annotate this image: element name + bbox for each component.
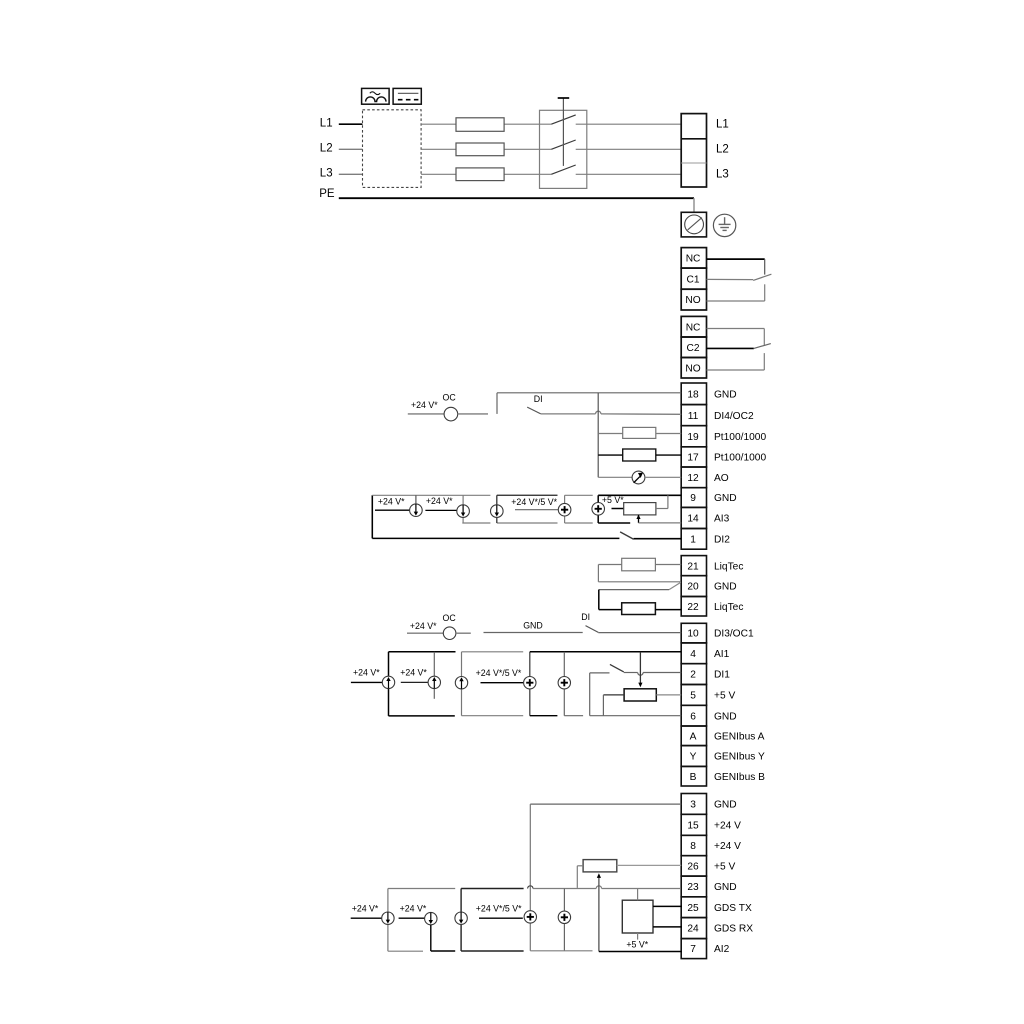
svg-text:+24 V*: +24 V* [353, 667, 380, 677]
svg-text:GND: GND [714, 582, 737, 593]
svg-text:NC: NC [686, 253, 701, 264]
svg-text:L2: L2 [320, 143, 333, 155]
svg-text:DI3/OC1: DI3/OC1 [714, 629, 754, 640]
svg-text:9: 9 [690, 493, 696, 504]
svg-text:7: 7 [690, 944, 696, 955]
svg-text:Pt100/1000: Pt100/1000 [714, 432, 766, 443]
svg-text:GND: GND [714, 882, 737, 893]
svg-text:+24 V*/5 V*: +24 V*/5 V* [511, 497, 557, 507]
svg-text:12: 12 [687, 473, 699, 484]
svg-text:L3: L3 [320, 168, 333, 180]
svg-text:DI4/OC2: DI4/OC2 [714, 411, 754, 422]
svg-text:LiqTec: LiqTec [714, 561, 743, 572]
svg-text:20: 20 [687, 582, 699, 593]
svg-text:C1: C1 [687, 274, 700, 285]
svg-text:1: 1 [690, 534, 696, 545]
svg-text:5: 5 [690, 691, 696, 702]
svg-text:L2: L2 [716, 144, 729, 156]
svg-text:LiqTec: LiqTec [714, 602, 743, 613]
svg-text:AI2: AI2 [714, 944, 730, 955]
svg-text:GND: GND [523, 621, 543, 631]
svg-text:C2: C2 [687, 343, 700, 354]
svg-text:24: 24 [687, 924, 699, 935]
svg-text:Y: Y [690, 752, 697, 763]
svg-text:GDS TX: GDS TX [714, 903, 752, 914]
svg-text:Pt100/1000: Pt100/1000 [714, 453, 766, 464]
svg-text:B: B [690, 772, 697, 783]
svg-text:+5 V*: +5 V* [626, 940, 648, 950]
svg-text:GND: GND [714, 493, 737, 504]
svg-text:+24 V: +24 V [714, 841, 741, 852]
svg-text:19: 19 [687, 432, 699, 443]
svg-text:OC: OC [443, 393, 457, 403]
svg-text:10: 10 [687, 629, 699, 640]
svg-text:PE: PE [319, 188, 335, 200]
svg-text:26: 26 [687, 862, 699, 873]
svg-text:GENIbus A: GENIbus A [714, 731, 765, 742]
svg-text:+24 V*: +24 V* [400, 667, 427, 677]
svg-text:+24 V*/5 V*: +24 V*/5 V* [476, 668, 522, 678]
svg-text:+5 V*: +5 V* [602, 495, 624, 505]
svg-text:L1: L1 [716, 119, 729, 131]
svg-text:L1: L1 [320, 118, 333, 130]
svg-text:NO: NO [685, 295, 700, 306]
svg-text:+24 V*: +24 V* [378, 496, 405, 506]
svg-text:NO: NO [685, 363, 700, 374]
svg-text:GND: GND [714, 800, 737, 811]
svg-text:+24 V*: +24 V* [411, 400, 438, 410]
svg-text:17: 17 [687, 453, 699, 464]
svg-text:+24 V*/5 V*: +24 V*/5 V* [476, 904, 522, 914]
svg-text:+5 V: +5 V [714, 862, 735, 873]
svg-text:DI: DI [534, 394, 543, 404]
svg-text:NC: NC [686, 322, 701, 333]
svg-text:+24 V: +24 V [714, 820, 741, 831]
svg-text:+24 V*: +24 V* [426, 496, 453, 506]
svg-text:AI1: AI1 [714, 649, 730, 660]
svg-text:4: 4 [690, 649, 696, 660]
svg-text:8: 8 [690, 841, 696, 852]
svg-text:GND: GND [714, 711, 737, 722]
svg-text:22: 22 [687, 602, 699, 613]
svg-text:GND: GND [714, 389, 737, 400]
svg-text:AI3: AI3 [714, 514, 730, 525]
svg-text:+5 V: +5 V [714, 691, 735, 702]
svg-text:3: 3 [690, 800, 696, 811]
svg-text:DI2: DI2 [714, 534, 730, 545]
svg-text:AO: AO [714, 473, 729, 484]
svg-text:GDS RX: GDS RX [714, 924, 753, 935]
svg-text:6: 6 [690, 711, 696, 722]
svg-text:GENIbus B: GENIbus B [714, 772, 765, 783]
svg-text:+24 V*: +24 V* [410, 621, 437, 631]
svg-text:A: A [690, 731, 697, 742]
svg-text:DI: DI [581, 612, 590, 622]
svg-text:23: 23 [687, 882, 699, 893]
svg-text:21: 21 [687, 561, 699, 572]
svg-text:DI1: DI1 [714, 670, 730, 681]
svg-text:L3: L3 [716, 169, 729, 181]
svg-text:15: 15 [687, 820, 699, 831]
svg-text:11: 11 [688, 411, 699, 422]
svg-text:+24 V*: +24 V* [400, 904, 427, 914]
svg-text:+24 V*: +24 V* [352, 904, 379, 914]
svg-text:14: 14 [687, 514, 699, 525]
svg-text:OC: OC [443, 613, 457, 623]
svg-text:GENIbus Y: GENIbus Y [714, 752, 765, 763]
svg-text:25: 25 [687, 903, 699, 914]
svg-text:2: 2 [690, 670, 696, 681]
svg-text:18: 18 [687, 389, 699, 400]
